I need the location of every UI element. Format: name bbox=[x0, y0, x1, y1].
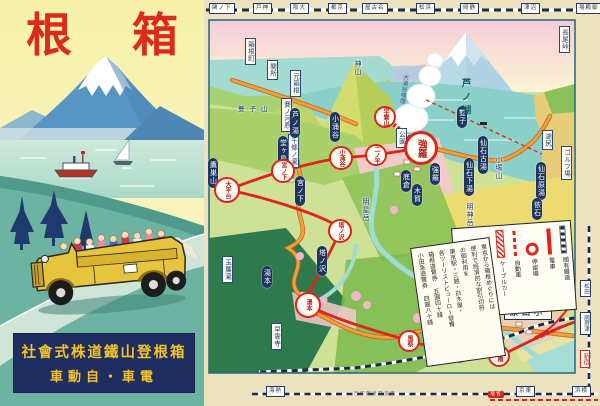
mainline-station-box: 戸神 bbox=[253, 3, 272, 14]
map-panel: 原田小 國有鐵道電車停留場自動車ケーブルカー温泉場遊覧地 東京から箱根めぐりには… bbox=[204, 0, 600, 406]
station-circle: 風祭 bbox=[398, 330, 420, 352]
mainline-station-box: 関ノ下 bbox=[209, 3, 235, 14]
place-box: 早雲寺 bbox=[271, 323, 282, 350]
legend-symbol-hatch bbox=[495, 230, 505, 258]
bottom-red-label: 電省 bbox=[488, 391, 504, 398]
terrain-label: 芦ノ湖 bbox=[460, 78, 470, 119]
edge-station-box: 松田 bbox=[580, 280, 591, 297]
poster-title: 根 箱 bbox=[0, 12, 204, 58]
bus-side-sign bbox=[124, 264, 138, 273]
ferry-boat bbox=[480, 122, 487, 125]
station-circle: 湯本 bbox=[295, 292, 321, 318]
place-pill: 芦ノ湯 bbox=[290, 108, 300, 138]
legend-item: 自動車 bbox=[511, 229, 522, 307]
postcard: 根 箱 社會式株道鐵山登根箱 車動自・車電 bbox=[0, 0, 600, 406]
place-box: 湖尻 bbox=[542, 130, 553, 150]
place-box: ゴルフ場 bbox=[561, 146, 572, 180]
terrain-label: 明神岳 bbox=[466, 203, 473, 227]
company-name: 社會式株道鐵山登根箱 bbox=[22, 341, 187, 362]
legend-item: 停留場 bbox=[524, 227, 542, 306]
place-box: 元箱根 bbox=[290, 70, 301, 97]
place-box: 箱根町 bbox=[245, 38, 256, 65]
terrain-label: 雙子山 bbox=[238, 106, 273, 113]
branch-station-box: 海熱 bbox=[266, 386, 285, 397]
legend-label: 自動車 bbox=[513, 260, 520, 278]
poster-title-char-right: 箱 bbox=[132, 12, 178, 58]
terrain-label: 明星岳 bbox=[362, 198, 369, 222]
legend-label: 電車 bbox=[547, 257, 554, 269]
mainline-station-box: 屋古名 bbox=[362, 3, 388, 14]
edge-station-box: 國府津 bbox=[580, 312, 591, 335]
mainline-station-box: 場殿御 bbox=[576, 3, 600, 14]
station-circle: 小涌谷 bbox=[329, 146, 353, 170]
printer-caption: 行印部通交道鐵 bbox=[354, 391, 396, 397]
poster-title-char-left: 根 bbox=[26, 12, 72, 58]
station-circle: 早雲山 bbox=[374, 106, 396, 128]
place-pill: 底倉 bbox=[401, 170, 411, 192]
company-services: 車動自・車電 bbox=[50, 366, 158, 385]
legend-item: 國有鐵道 bbox=[559, 225, 570, 303]
mainline-station-box: 都京 bbox=[328, 3, 347, 14]
shinjuku-label: 新宿 bbox=[580, 350, 590, 368]
mainline-station-box: 松浜 bbox=[416, 3, 435, 14]
company-name-box: 社會式株道鐵山登根箱 車動自・車電 bbox=[13, 333, 195, 393]
place-pill: 仙石古湯 bbox=[478, 136, 488, 174]
legend-symbol-reddash bbox=[512, 231, 517, 257]
station-circle: 大平台 bbox=[214, 177, 240, 203]
place-pill: 木賀 bbox=[412, 184, 422, 206]
station-circle: 宮ノ下 bbox=[271, 159, 295, 183]
legend-label: 停留場 bbox=[530, 258, 537, 276]
station-circle: 塔ノ沢 bbox=[328, 219, 352, 243]
place-pill: 湯本 bbox=[262, 266, 272, 288]
place-pill: 仙石下湯 bbox=[464, 158, 474, 196]
place-box: 玉簾瀧 bbox=[222, 256, 233, 283]
station-circle: 二ノ平 bbox=[365, 144, 387, 166]
terrain-label: 小塚山 bbox=[495, 156, 502, 180]
mainline-station-box: 岡静 bbox=[460, 3, 479, 14]
legend-label: ケーブルカー bbox=[498, 261, 506, 297]
branch-station-box: 浜横 bbox=[572, 386, 591, 397]
mainline-station-box: 阪大 bbox=[290, 3, 309, 14]
bus-headlight bbox=[41, 255, 49, 263]
legend-item: 電車 bbox=[545, 226, 556, 304]
place-box: 長尾峠 bbox=[559, 26, 570, 53]
branch-station-box: 京東 bbox=[516, 386, 535, 397]
mainline-station-box: 津沼 bbox=[521, 3, 540, 14]
place-pill: 仙石原湯 bbox=[536, 162, 546, 200]
place-pill: 塔ノ沢 bbox=[317, 246, 327, 276]
place-pill: 小涌谷 bbox=[330, 112, 340, 142]
legend-label: 國有鐵道 bbox=[561, 256, 569, 280]
legend-symbol-redline bbox=[547, 228, 552, 254]
station-circle: 強羅 bbox=[404, 131, 438, 165]
discount-ticket-ad: 東京から箱根めぐりには便利で經濟的な割引切符の御利用を東京駅・三越・白木屋・各ツ… bbox=[410, 237, 506, 367]
legend-symbol-ring bbox=[526, 242, 540, 256]
poster-panel: 根 箱 社會式株道鐵山登根箱 車動自・車電 bbox=[0, 0, 204, 406]
place-pill: 強羅 bbox=[430, 163, 440, 185]
terrain-label: 神山 bbox=[354, 60, 361, 76]
place-box: 關所 bbox=[267, 60, 278, 80]
legend-symbol-dash bbox=[559, 225, 567, 253]
place-pill: 宮ノ下 bbox=[295, 176, 305, 206]
place-pill: 依石 bbox=[532, 198, 542, 220]
